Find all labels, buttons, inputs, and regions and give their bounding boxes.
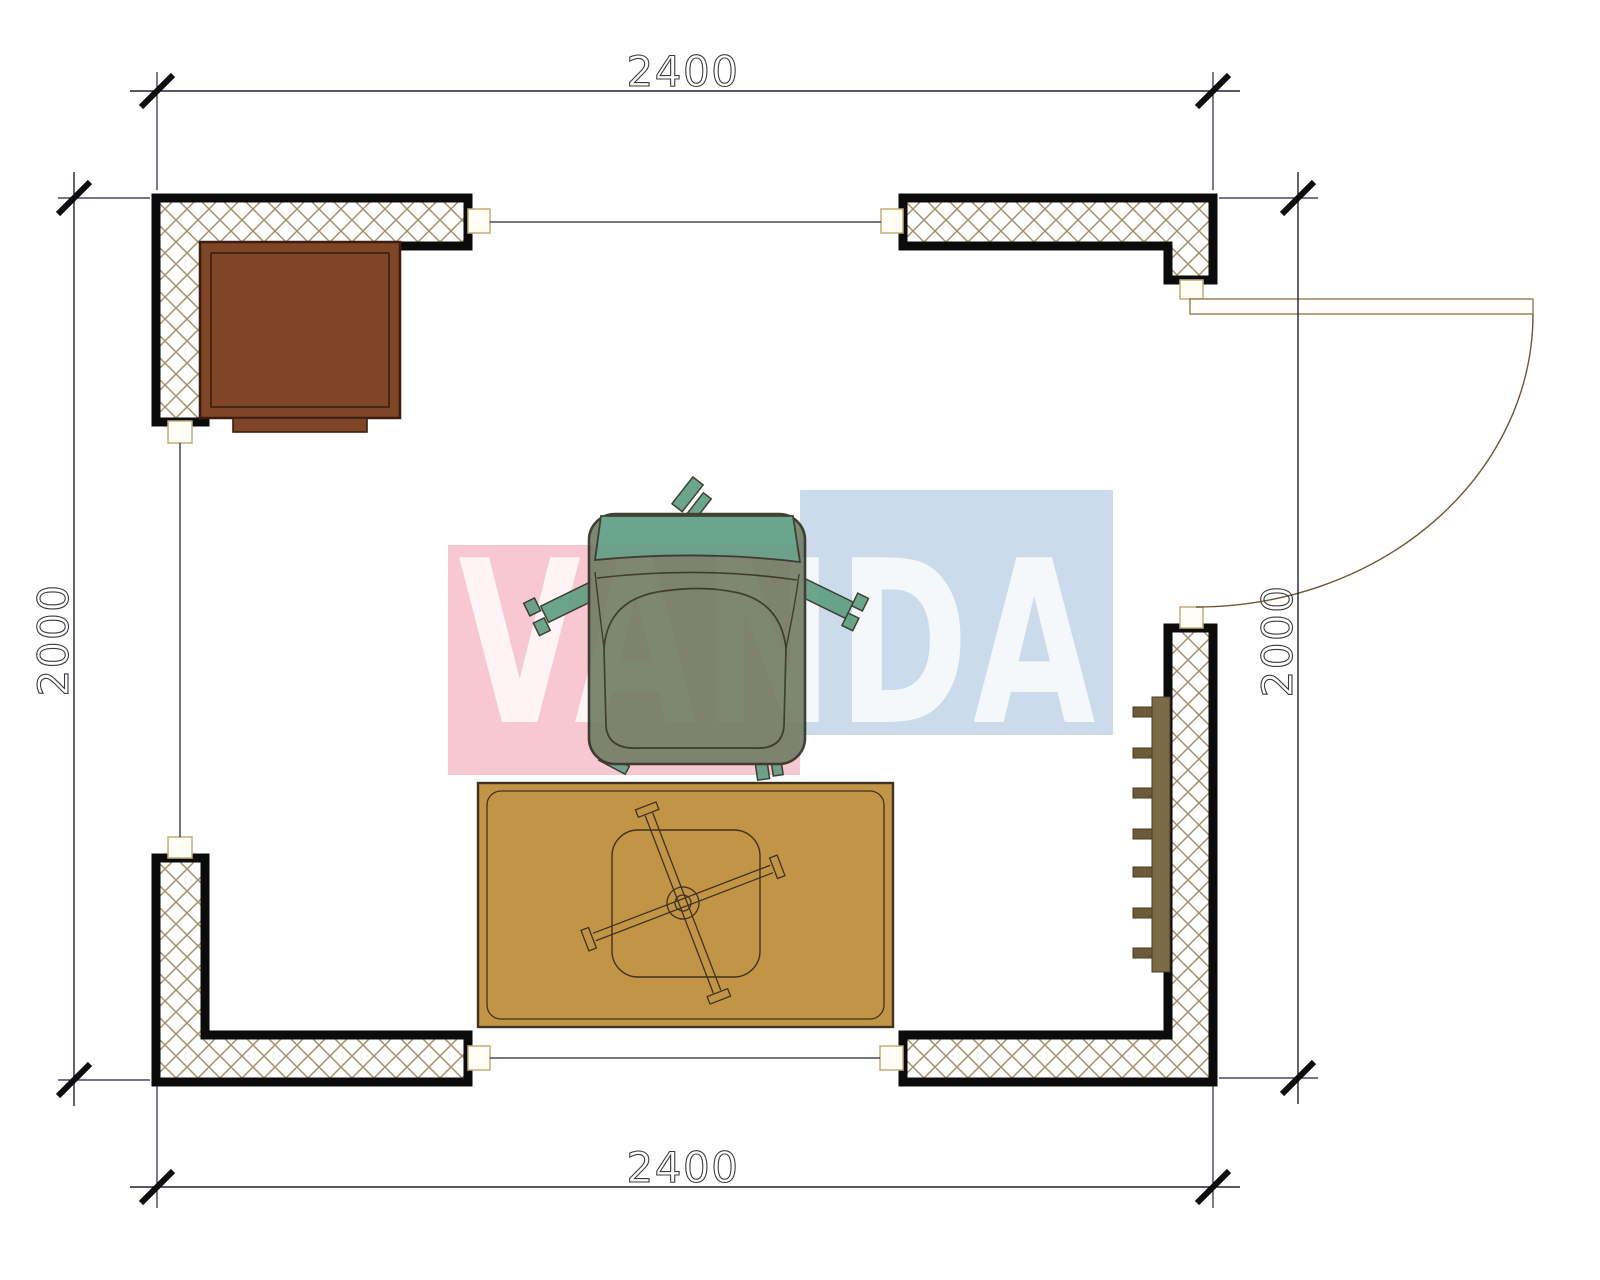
wall-cap	[881, 209, 903, 233]
floor-plan-drawing: VANDA	[0, 0, 1600, 1280]
door-leaf	[1190, 299, 1533, 314]
wall-top-right	[903, 198, 1213, 280]
radiator-fin	[1133, 829, 1152, 839]
wall-cap	[468, 209, 490, 233]
radiator-fin	[1133, 948, 1152, 958]
wall-cap	[168, 421, 192, 443]
radiator-panel	[1152, 697, 1170, 972]
radiator-fin	[1133, 748, 1152, 758]
cabinet	[200, 242, 400, 432]
wall-cap	[1180, 607, 1203, 628]
kotatsu-table	[478, 768, 893, 1037]
radiator-fin	[1133, 867, 1152, 877]
dim-text-right: 2000	[1253, 585, 1302, 698]
floor-plan-page: VANDA	[0, 0, 1600, 1280]
dim-text-top: 2400	[627, 47, 740, 96]
radiator-fin	[1133, 707, 1152, 717]
wall-cap	[168, 837, 192, 858]
radiator-fin	[1133, 908, 1152, 918]
wall-cap	[468, 1046, 490, 1070]
door-jamb-cap	[1180, 280, 1203, 299]
dim-text-bottom: 2400	[627, 1143, 740, 1192]
wall-bottom-left	[156, 858, 468, 1082]
radiator	[1133, 697, 1170, 972]
cabinet-body	[200, 242, 400, 418]
door	[1190, 299, 1533, 607]
dim-text-left: 2000	[29, 584, 78, 697]
wall-cap	[880, 1046, 903, 1070]
table-top	[478, 783, 893, 1027]
door-swing-arc	[1196, 314, 1533, 607]
armchair-backrest	[595, 516, 800, 562]
radiator-fin	[1133, 788, 1152, 798]
cabinet-base-tab	[233, 418, 367, 432]
